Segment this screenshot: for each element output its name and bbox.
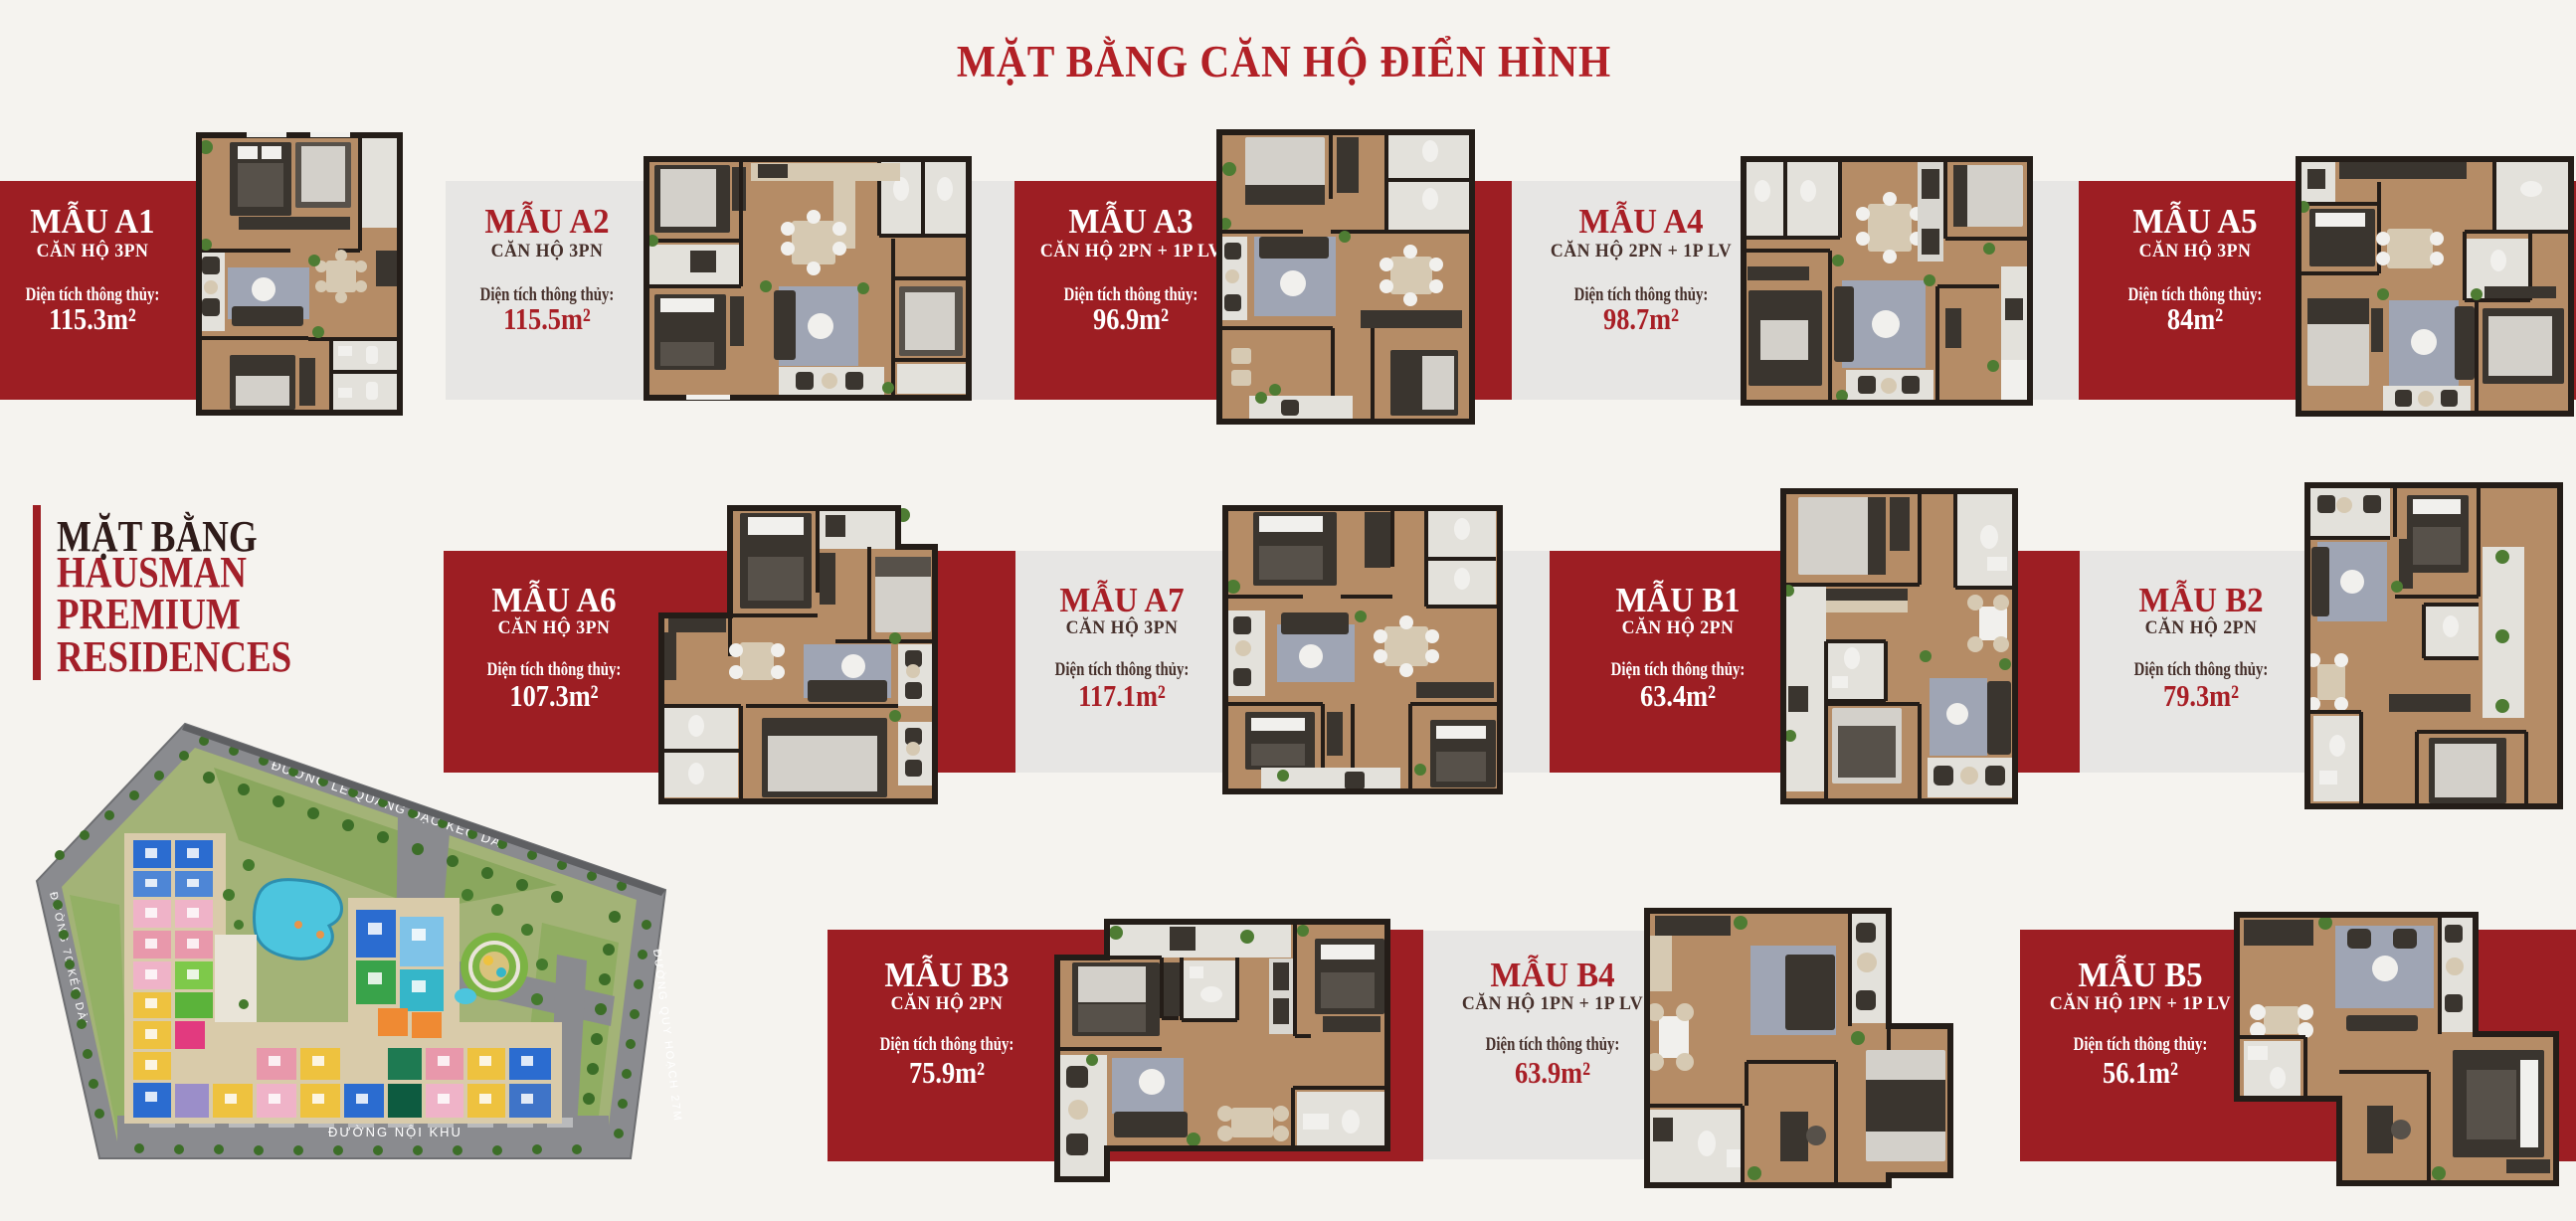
svg-text:ĐƯỜNG QUY HOẠCH 27M: ĐƯỜNG QUY HOẠCH 27M [650,949,684,1123]
svg-text:ĐƯỜNG NỘI KHU: ĐƯỜNG NỘI KHU [328,1125,462,1139]
